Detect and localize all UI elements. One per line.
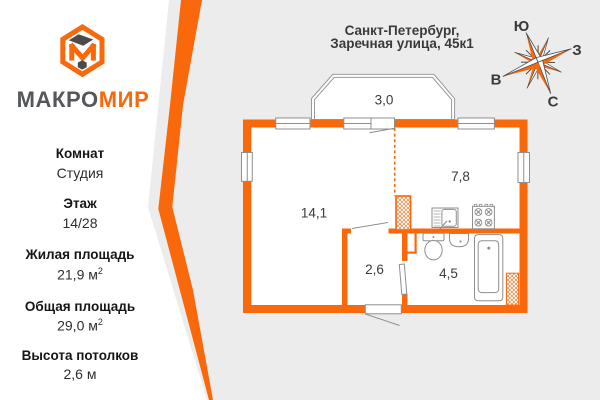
svg-text:С: С: [548, 94, 559, 111]
svg-text:Ю: Ю: [514, 18, 529, 35]
svg-text:3,0: 3,0: [375, 93, 394, 108]
svg-text:2,6: 2,6: [365, 262, 384, 277]
svg-text:14,1: 14,1: [301, 206, 327, 221]
svg-text:В: В: [491, 72, 502, 89]
svg-text:7,8: 7,8: [451, 169, 470, 184]
svg-text:4,5: 4,5: [439, 266, 458, 281]
svg-text:З: З: [572, 42, 581, 59]
